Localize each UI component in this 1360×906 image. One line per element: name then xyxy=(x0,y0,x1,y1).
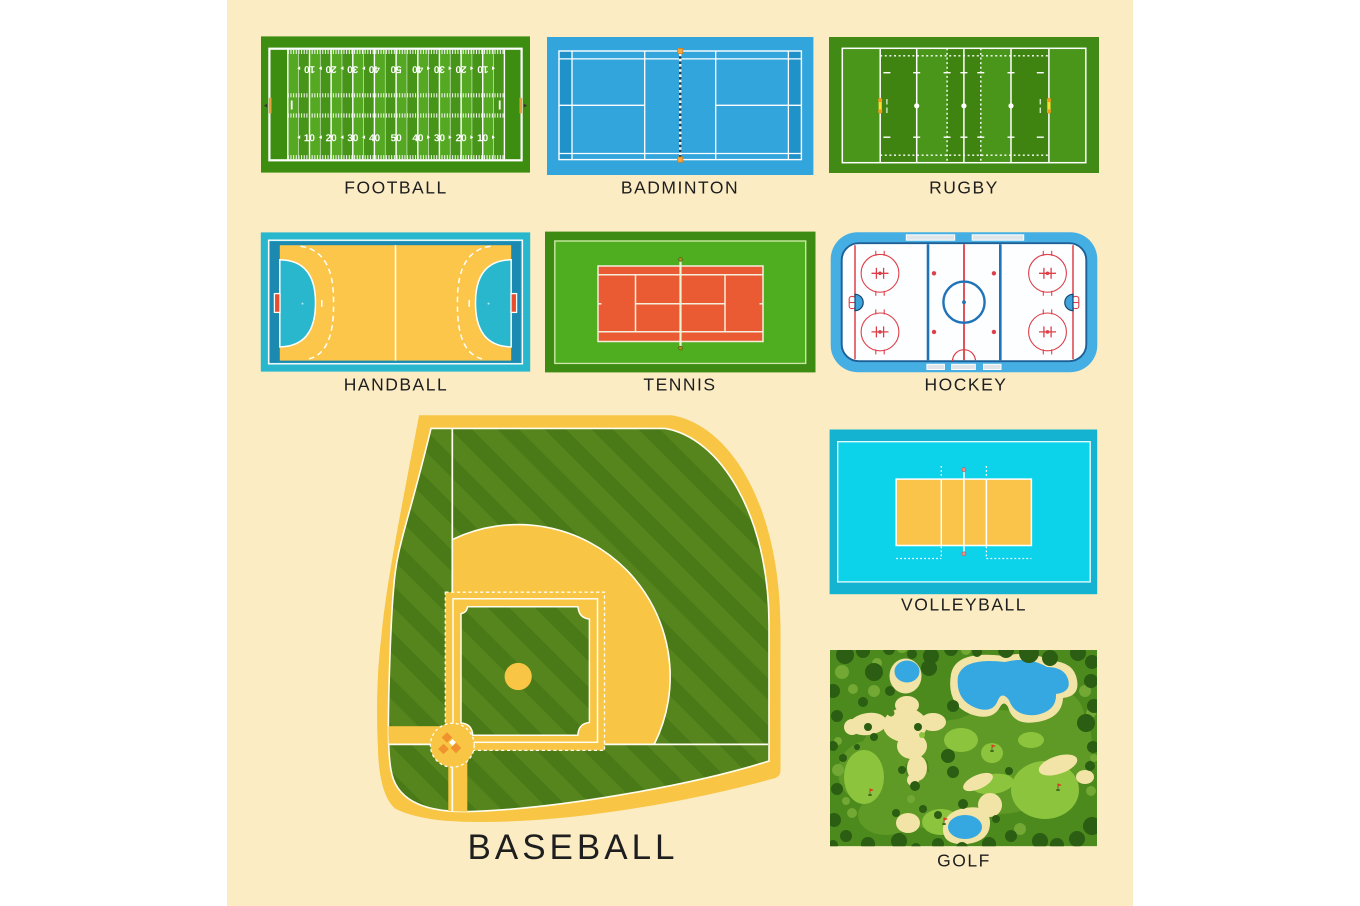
svg-text:FOOTBALL: FOOTBALL xyxy=(344,178,447,198)
svg-text:TENNIS: TENNIS xyxy=(643,375,716,395)
svg-text:BADMINTON: BADMINTON xyxy=(621,178,739,198)
svg-text:RUGBY: RUGBY xyxy=(929,178,999,198)
svg-text:HANDBALL: HANDBALL xyxy=(344,375,448,395)
svg-text:GOLF: GOLF xyxy=(937,851,991,871)
svg-text:VOLLEYBALL: VOLLEYBALL xyxy=(901,595,1027,615)
svg-text:HOCKEY: HOCKEY xyxy=(925,375,1008,395)
svg-text:BASEBALL: BASEBALL xyxy=(468,828,679,867)
